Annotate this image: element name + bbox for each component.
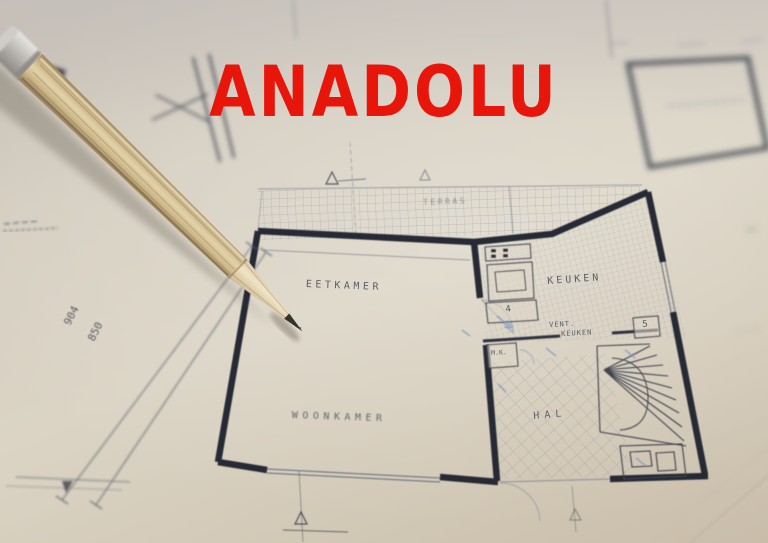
plan-number-4: 4	[505, 305, 512, 315]
anadolu-logo: ANADOLU	[209, 57, 559, 128]
margin-note-dashes	[3, 221, 58, 231]
room-label-mk: M.K.	[491, 349, 507, 356]
paper-creases	[652, 448, 768, 543]
plan-number-5: 5	[642, 321, 648, 330]
room-label-terras: TERRAS	[423, 197, 467, 207]
room-label-vent-line1: VENT.	[549, 321, 575, 329]
photo-canvas: EETKAMER WOONKAMER KEUKEN HAL TERRAS VEN…	[0, 0, 768, 543]
